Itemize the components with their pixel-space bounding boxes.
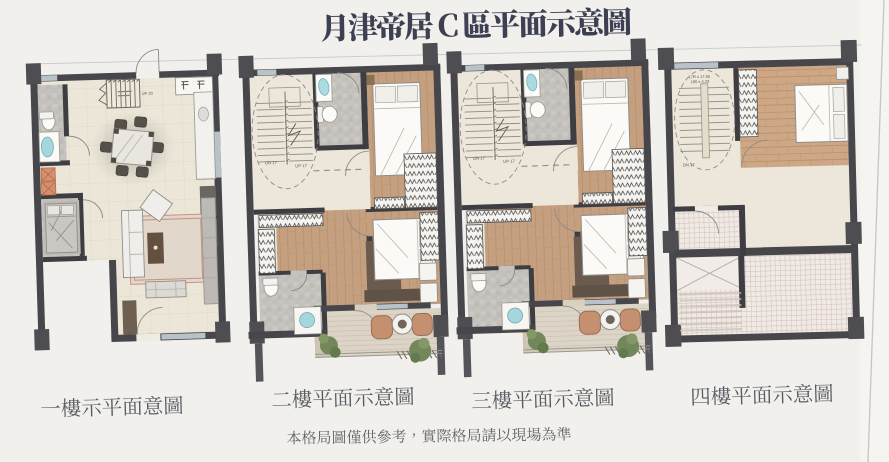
- svg-text:DN 17: DN 17: [683, 162, 696, 167]
- svg-text:180 x 4.29: 180 x 4.29: [691, 79, 711, 85]
- svg-text:UP 20: UP 20: [142, 91, 154, 96]
